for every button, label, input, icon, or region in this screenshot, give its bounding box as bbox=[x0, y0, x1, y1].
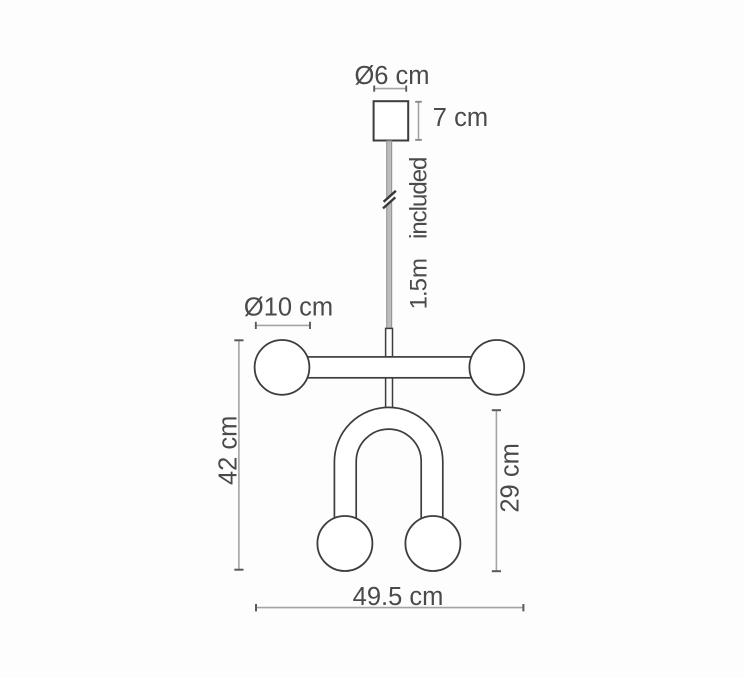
svg-text:29 cm: 29 cm bbox=[497, 443, 525, 512]
svg-text:1.5mincluded: 1.5mincluded bbox=[405, 158, 432, 310]
svg-text:7 cm: 7 cm bbox=[433, 104, 488, 132]
svg-text:Ø6 cm: Ø6 cm bbox=[354, 62, 429, 90]
svg-text:Ø10 cm: Ø10 cm bbox=[244, 294, 333, 322]
svg-text:42 cm: 42 cm bbox=[215, 416, 243, 485]
